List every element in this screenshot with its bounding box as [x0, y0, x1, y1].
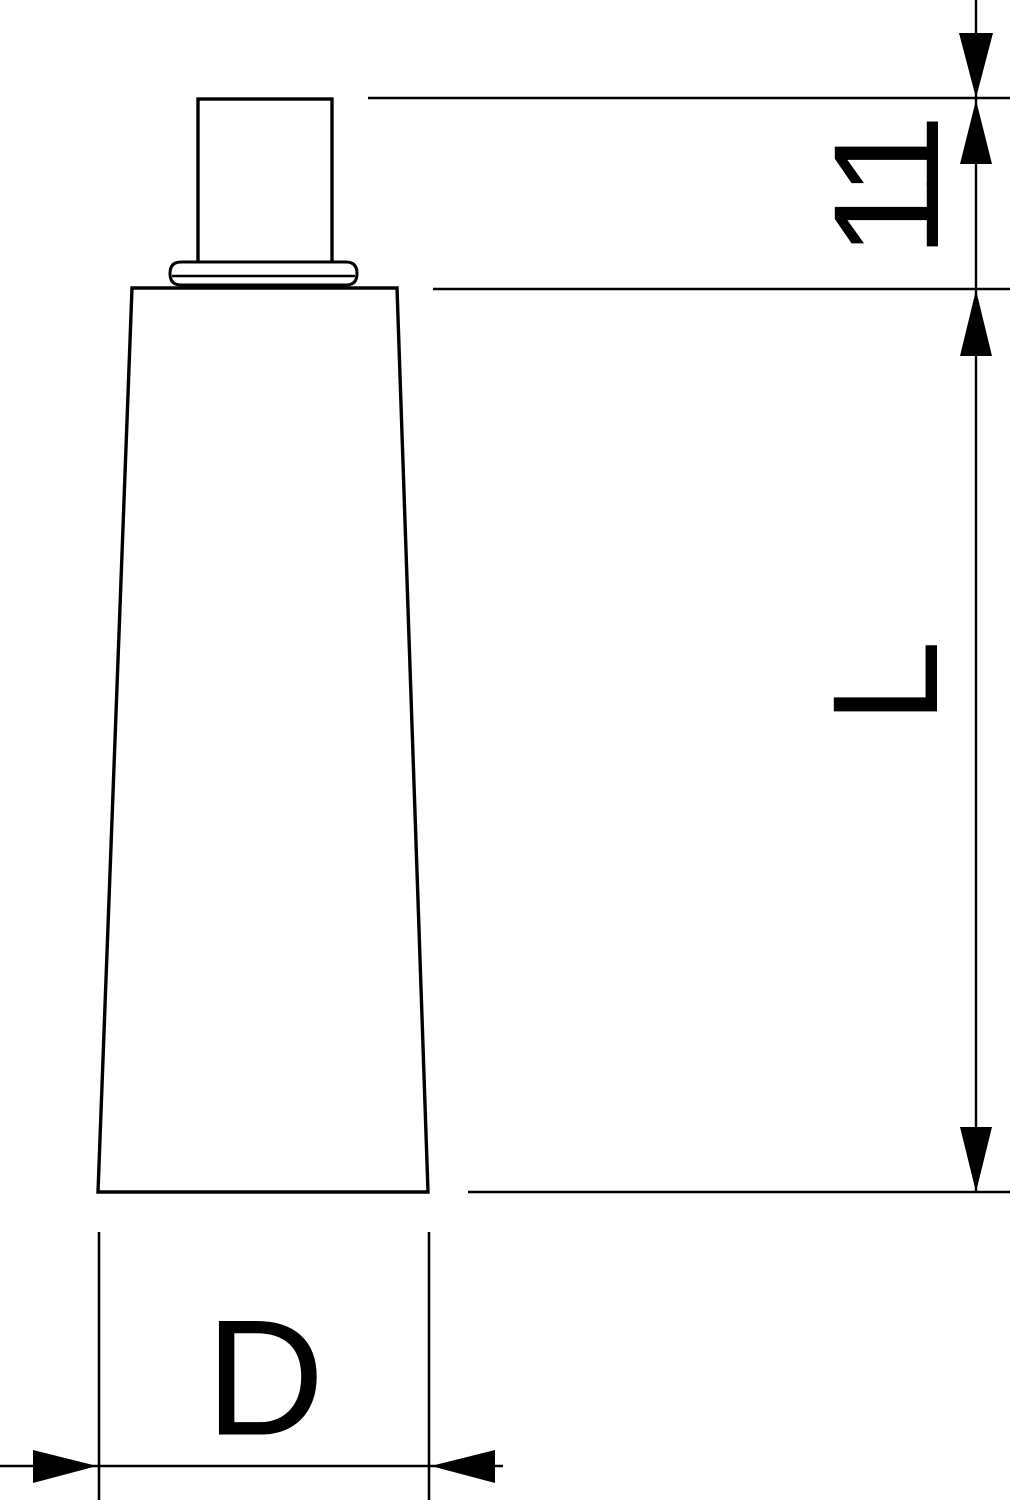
- tube-body: [98, 288, 428, 1192]
- tube-cap: [198, 99, 332, 263]
- dim-arrow-up-at-shoulder: [960, 290, 992, 356]
- tube-flange: [170, 262, 357, 285]
- dimension-label-cap-height: 11: [811, 126, 961, 270]
- dim-arrow-down-at-bottom: [960, 1127, 992, 1192]
- dim-arrow-right-at-d-left: [33, 1450, 97, 1483]
- tube-outline: [98, 99, 428, 1192]
- dimension-label-body-length: L: [810, 640, 960, 723]
- dim-arrow-down-at-cap-top: [959, 33, 993, 98]
- dimension-label-diameter: D: [205, 1296, 324, 1461]
- dim-arrow-left-at-d-right: [431, 1450, 495, 1483]
- technical-drawing-canvas: 11 L D: [0, 0, 1010, 1500]
